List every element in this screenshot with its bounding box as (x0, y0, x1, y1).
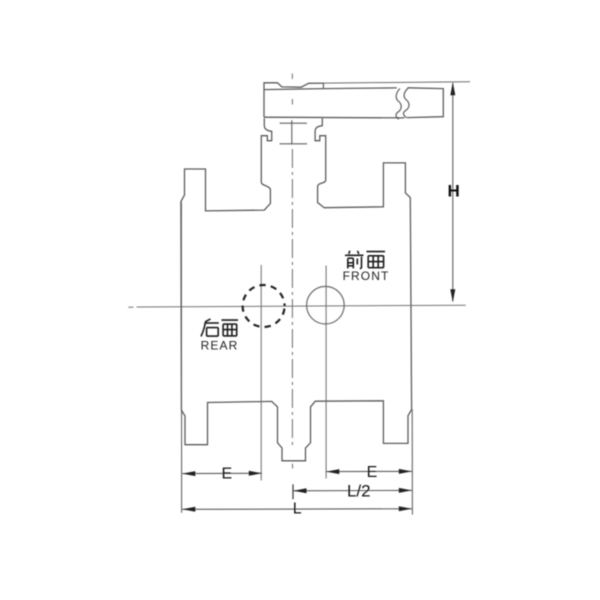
svg-text:REAR: REAR (201, 338, 239, 352)
svg-text:H: H (447, 182, 459, 201)
svg-text:L: L (293, 501, 302, 518)
svg-text:L/2: L/2 (347, 481, 371, 500)
svg-text:FRONT: FRONT (343, 269, 390, 283)
svg-text:E: E (367, 464, 378, 481)
svg-text:E: E (221, 466, 232, 483)
